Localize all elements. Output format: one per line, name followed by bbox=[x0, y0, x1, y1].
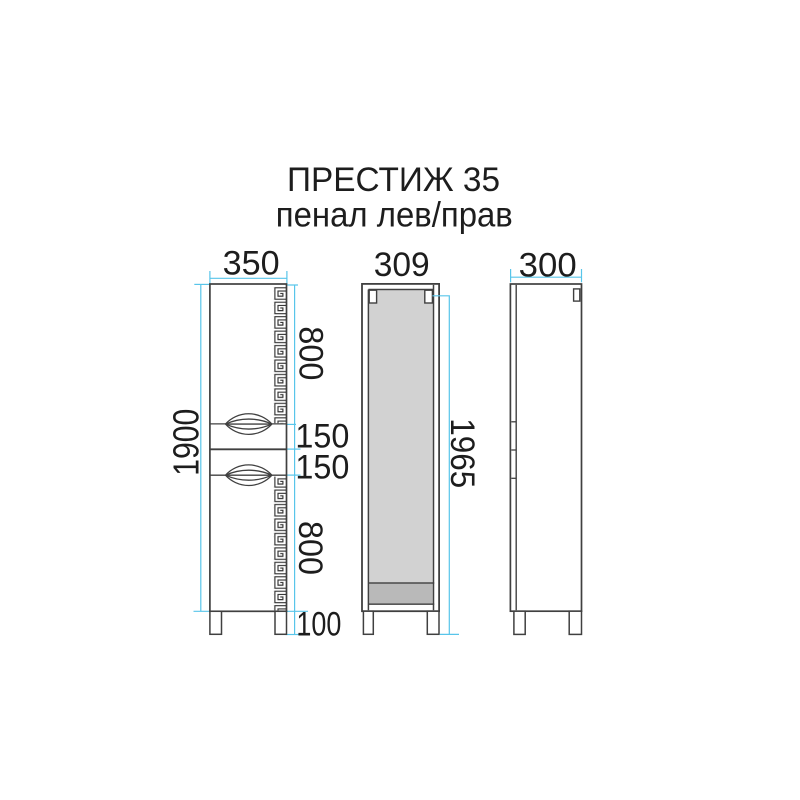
svg-text:100: 100 bbox=[296, 606, 341, 644]
svg-text:800: 800 bbox=[291, 521, 329, 575]
svg-text:1900: 1900 bbox=[166, 409, 207, 476]
svg-text:пенал лев/прав: пенал лев/прав bbox=[276, 195, 513, 234]
svg-text:1965: 1965 bbox=[443, 418, 481, 488]
svg-text:150: 150 bbox=[295, 449, 349, 487]
svg-text:309: 309 bbox=[374, 246, 430, 284]
svg-text:ПРЕСТИЖ 35: ПРЕСТИЖ 35 bbox=[287, 161, 500, 199]
svg-text:350: 350 bbox=[223, 245, 280, 283]
svg-text:800: 800 bbox=[291, 326, 329, 380]
svg-text:300: 300 bbox=[519, 246, 577, 284]
